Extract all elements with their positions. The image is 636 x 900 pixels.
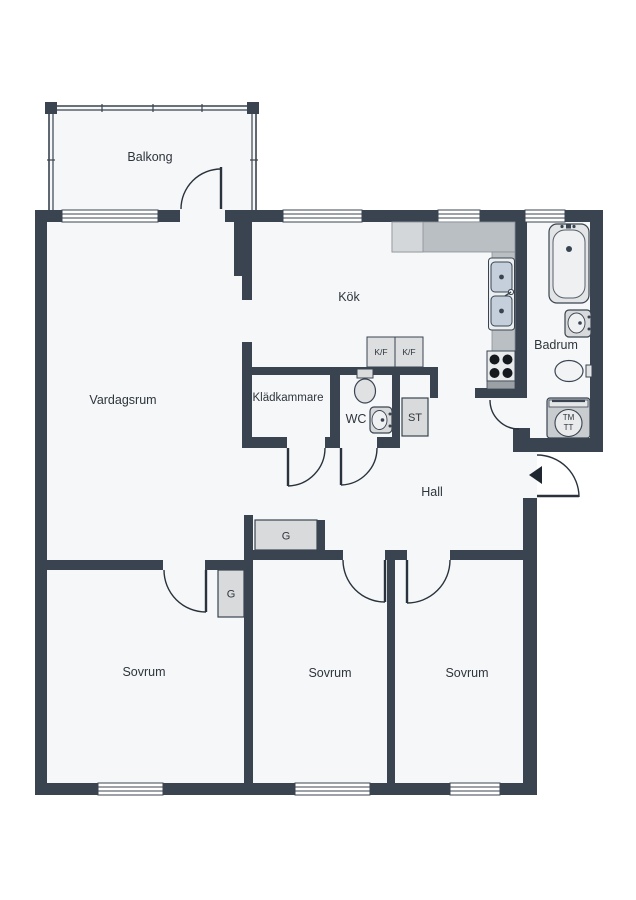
st-label: ST — [408, 412, 422, 424]
room-label-balkong: Balkong — [127, 150, 172, 164]
g-hall-label: G — [282, 531, 291, 543]
washer-label-tt: TT — [564, 423, 574, 432]
window-sovrum-3 — [450, 783, 500, 795]
kitchen-sink — [489, 258, 515, 330]
window-kok-right — [438, 210, 480, 222]
window-vardagsrum — [62, 210, 158, 222]
room-label-kok: Kök — [338, 290, 360, 304]
window-sovrum-1 — [98, 783, 163, 795]
wc-sink — [370, 407, 392, 433]
room-label-sovrum-1: Sovrum — [122, 665, 165, 679]
g-sovrum-label: G — [227, 589, 236, 601]
floor-plan-drawing: K/F K/F ST G G — [0, 0, 636, 900]
window-sovrum-2 — [295, 783, 370, 795]
closet-st: ST — [402, 398, 428, 436]
washer-label-tm: TM — [563, 413, 575, 422]
window-kok-left — [283, 210, 362, 222]
room-label-vardagsrum: Vardagsrum — [89, 393, 156, 407]
closet-g-sovrum: G — [218, 570, 244, 617]
entrance-door — [537, 455, 579, 497]
washer-dryer: TM TT — [547, 398, 590, 438]
room-label-kladkammare: Klädkammare — [253, 392, 324, 404]
kf-label-1: K/F — [374, 347, 387, 357]
fridge-freezer: K/F K/F — [367, 337, 423, 367]
kf-label-2: K/F — [402, 347, 415, 357]
wc-toilet — [355, 369, 376, 403]
room-label-badrum: Badrum — [534, 338, 578, 352]
room-label-sovrum-2: Sovrum — [308, 666, 351, 680]
window-badrum — [525, 210, 565, 222]
stove — [487, 351, 515, 389]
badrum-sink — [565, 310, 591, 337]
room-label-wc: WC — [346, 412, 367, 426]
room-label-hall: Hall — [421, 485, 443, 499]
room-label-sovrum-3: Sovrum — [445, 666, 488, 680]
floor-plan-page: K/F K/F ST G G — [0, 0, 636, 900]
bathtub — [549, 224, 589, 303]
closet-g-hall: G — [255, 520, 317, 550]
